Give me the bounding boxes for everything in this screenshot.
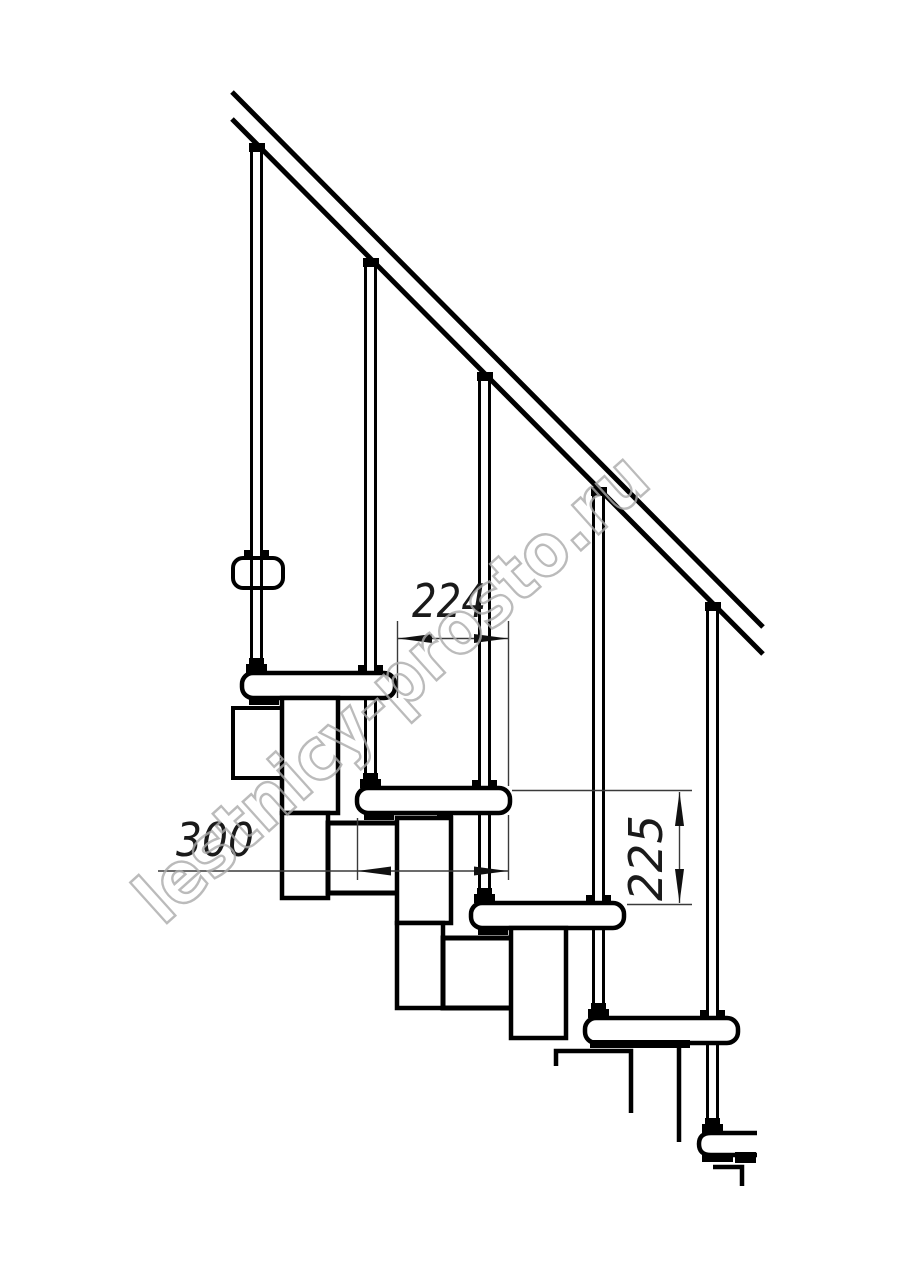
tread-3 [471,903,624,928]
module-5-bracket-partial [713,1167,742,1186]
base-collar [591,1003,606,1009]
arrow-down [675,869,684,903]
base-collar [477,888,492,894]
baluster-5 [700,602,725,1133]
module-3-body [511,928,566,1038]
baluster-1 [246,143,267,673]
base-collar [249,658,264,664]
module-4-bracket-partial [556,1051,631,1113]
tread-5-truncated [699,1133,757,1155]
module-2-leg [397,923,443,1008]
module-2-bracket [328,823,403,893]
base-collar [705,1118,720,1124]
base-collar [363,773,378,779]
tread-4 [585,1018,738,1043]
staircase-drawing: 224 300 225 lestnicy-prosto.ru [0,0,914,1280]
dimension-label-225: 225 [619,815,673,901]
end-on-tread [233,558,283,588]
baluster-4 [586,487,611,1018]
module-3-bracket [443,938,518,1008]
staircase-drawing-svg: 224 300 225 lestnicy-prosto.ru [0,0,914,1280]
tread-2 [357,788,510,813]
arrow-up [675,792,684,826]
